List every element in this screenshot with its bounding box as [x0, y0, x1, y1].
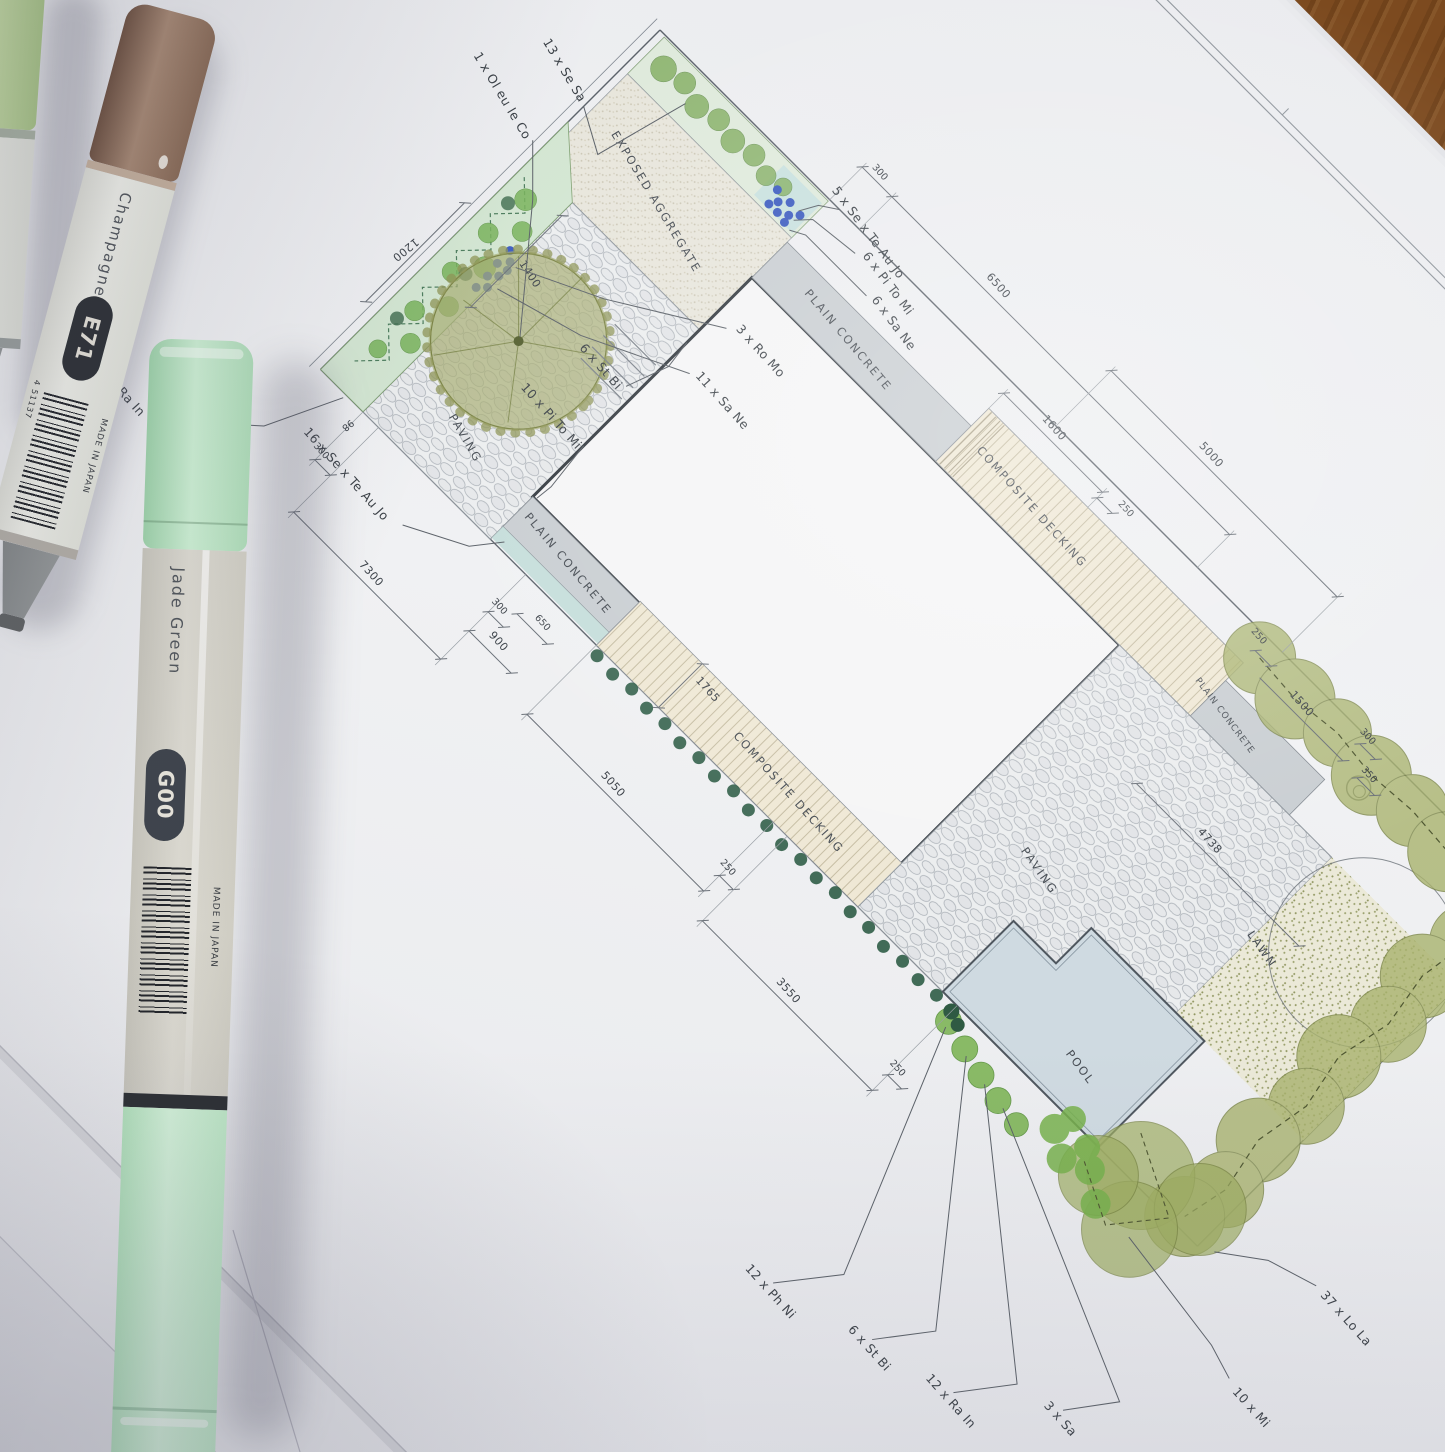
marker-code-badge: E71: [58, 292, 117, 385]
marker-color-name: Champagne: [90, 190, 136, 300]
cap-glint: [157, 154, 169, 170]
barcode: [11, 392, 89, 529]
marker-color-name: Jade Green: [165, 567, 188, 676]
marker-code: E71: [70, 313, 105, 364]
marker-body: Jade Green G00 MADE IN JAPAN: [124, 548, 247, 1096]
made-in-label: MADE IN JAPAN: [208, 887, 221, 968]
marker-lower-cap: [108, 1107, 227, 1452]
body-highlight: [184, 550, 210, 1095]
marker-cap: [143, 338, 254, 552]
barcode: [138, 866, 191, 1016]
marker-code: G00: [152, 770, 178, 820]
lower-cap-highlight: [120, 1417, 208, 1428]
marker-code-badge: G00: [144, 748, 187, 841]
cap-highlight: [160, 347, 243, 360]
lower-cap-ridge: [113, 1407, 217, 1414]
cap-ridge: [144, 520, 248, 526]
photo-of-garden-plan: EXPOSED AGGREGATE PAVING: [0, 0, 1445, 1452]
